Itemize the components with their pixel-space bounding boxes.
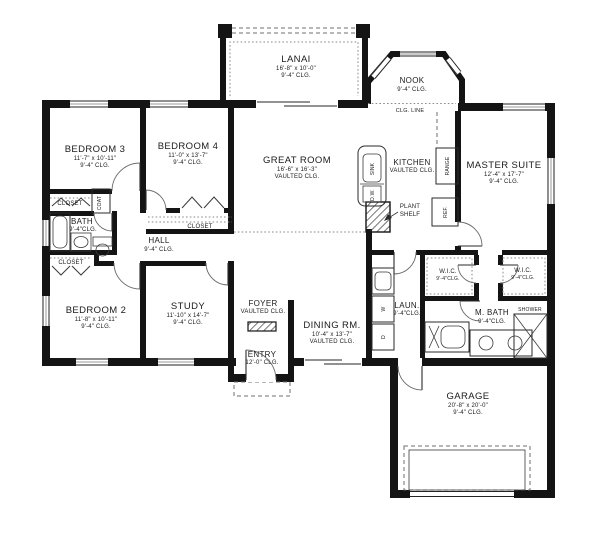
lanai-post — [356, 24, 370, 38]
sink-bowl — [508, 336, 522, 350]
dims-master-suite: 12'-4" x 17'-7" — [484, 172, 524, 178]
label-clg-line: CLG. LINE — [396, 108, 425, 114]
label-coat-closet: COAT — [97, 196, 103, 210]
clg-bedroom2: 9'-4" CLG. — [81, 324, 111, 330]
bifold-closet-bedroom2 — [52, 266, 90, 275]
clg-entry: 12'-0" CLG. — [245, 360, 278, 366]
floor-plan-page: LANAI 16'-8" x 10'-0" 9'-4" CLG. NOOK 9'… — [0, 0, 600, 534]
clg-dining: VAULTED CLG. — [310, 339, 355, 345]
lanai-post — [218, 24, 232, 38]
slider-dining — [304, 358, 362, 366]
window-master-right — [547, 158, 555, 204]
label-nook: NOOK — [400, 76, 425, 85]
clg-garage: 9'-4" CLG. — [453, 410, 483, 416]
clg-wic1: 9'-4"CLG. — [436, 276, 459, 282]
label-closet-bedroom2: CLOSET — [58, 260, 83, 266]
label-bath: BATH — [71, 217, 93, 226]
clg-study: 9'-4" CLG. — [173, 320, 203, 326]
bifold-closet-bedroom4 — [182, 197, 224, 208]
label-shower: SHOWER — [518, 307, 542, 313]
garden-tub — [425, 322, 469, 352]
clg-nook: 9'-4" CLG. — [397, 87, 427, 93]
window-nook-left — [371, 57, 391, 79]
dims-study: 11'-10" x 14'-7" — [167, 313, 210, 319]
label-great-room: GREAT ROOM — [263, 155, 331, 166]
label-wic1: W.I.C. — [439, 269, 457, 275]
window-nook-top — [400, 51, 436, 57]
shower — [514, 314, 547, 358]
window-bedroom2-bottom — [76, 358, 108, 366]
clg-hall: 9'-4" CLG. — [144, 247, 174, 253]
reference-lines — [50, 28, 545, 490]
door-bedroom3 — [112, 163, 140, 191]
label-sink: SINK — [370, 162, 376, 175]
label-lanai: LANAI — [281, 54, 310, 65]
clg-bedroom4: 9'-4" CLG. — [173, 160, 203, 166]
label-master-suite: MASTER SUITE — [466, 160, 541, 171]
label-bedroom2: BEDROOM 2 — [66, 305, 127, 316]
window-bedroom2-left — [42, 296, 50, 326]
label-bedroom4: BEDROOM 4 — [158, 141, 219, 152]
door-master — [458, 222, 482, 246]
clg-laundry: 9'-4"CLG. — [393, 311, 421, 317]
door-garage — [398, 366, 422, 390]
window-bedroom4 — [150, 100, 188, 108]
sink-bowl — [479, 336, 493, 350]
garage-door-panel — [409, 450, 525, 490]
label-refrigerator: REF. — [443, 206, 449, 218]
clg-wic2: 9'-4"CLG. — [511, 275, 534, 281]
clg-great-room: VAULTED CLG. — [275, 174, 320, 180]
clg-master-bath: 9'-4"CLG. — [478, 319, 506, 325]
label-closet-bedroom4: CLOSET — [187, 224, 212, 230]
toilet-tank — [93, 237, 112, 246]
door-wic1 — [458, 265, 476, 283]
label-range: RANGE — [445, 156, 451, 175]
label-foyer: FOYER — [248, 299, 277, 308]
clg-foyer: VAULTED CLG. — [241, 309, 286, 315]
label-dining: DINING RM. — [303, 320, 360, 331]
door-bedroom2 — [114, 263, 140, 289]
window-bedroom3 — [70, 100, 108, 108]
clg-lanai: 9'-4" CLG. — [281, 73, 311, 79]
dims-dining: 10'-4" x 13'-7" — [312, 332, 352, 338]
clg-bedroom3: 9'-4" CLG. — [80, 163, 110, 169]
dims-great-room: 16'-6" x 16'-3" — [277, 167, 317, 173]
dims-garage: 20'-8" x 20'-0" — [448, 403, 488, 409]
window-bath — [42, 220, 50, 246]
door-laundry — [394, 252, 416, 274]
dims-bedroom3: 11'-7" x 10'-11" — [74, 156, 117, 162]
foyer-niche-wall — [248, 322, 276, 331]
label-study: STUDY — [171, 301, 205, 312]
door-study — [206, 263, 228, 285]
dims-lanai: 16'-8" x 10'-0" — [276, 66, 316, 72]
label-master-bath: M. BATH — [475, 308, 509, 317]
sink-bowl — [74, 237, 88, 248]
label-plant-shelf-1: PLANT — [400, 204, 420, 210]
entry-stoop — [234, 382, 290, 396]
window-study — [158, 358, 194, 366]
label-plant-shelf-2: SHELF — [400, 212, 420, 218]
windows — [42, 51, 555, 498]
dims-bedroom4: 11'-0" x 13'-7" — [168, 153, 207, 159]
label-hall: HALL — [148, 236, 169, 245]
clg-kitchen: VAULTED CLG. — [390, 168, 435, 174]
window-master-top — [503, 103, 545, 111]
label-laundry: LAUN. — [394, 301, 419, 310]
floor-plan-drawing: LANAI 16'-8" x 10'-0" 9'-4" CLG. NOOK 9'… — [0, 0, 600, 534]
clg-master-suite: 9'-4" CLG. — [489, 179, 519, 185]
label-entry: ENTRY — [248, 350, 277, 359]
label-wic2: W.I.C. — [514, 268, 532, 274]
label-washer: W — [381, 306, 387, 311]
dims-bedroom2: 11'-8" x 10'-11" — [75, 317, 118, 323]
label-closet-bedroom3: CLOSET — [57, 201, 82, 207]
label-garage: GARAGE — [446, 391, 489, 402]
label-dishwasher: D.W. — [370, 189, 376, 201]
label-bedroom3: BEDROOM 3 — [65, 144, 126, 155]
label-kitchen: KITCHEN — [393, 158, 430, 167]
garage-door-overhead — [404, 446, 530, 490]
garage-door-opening — [410, 490, 514, 498]
door-bedroom4 — [146, 190, 166, 210]
label-dryer: D — [381, 335, 387, 339]
clg-bath: 9'-4"CLG. — [69, 227, 97, 233]
slider-greatroom-lanai — [256, 100, 338, 108]
